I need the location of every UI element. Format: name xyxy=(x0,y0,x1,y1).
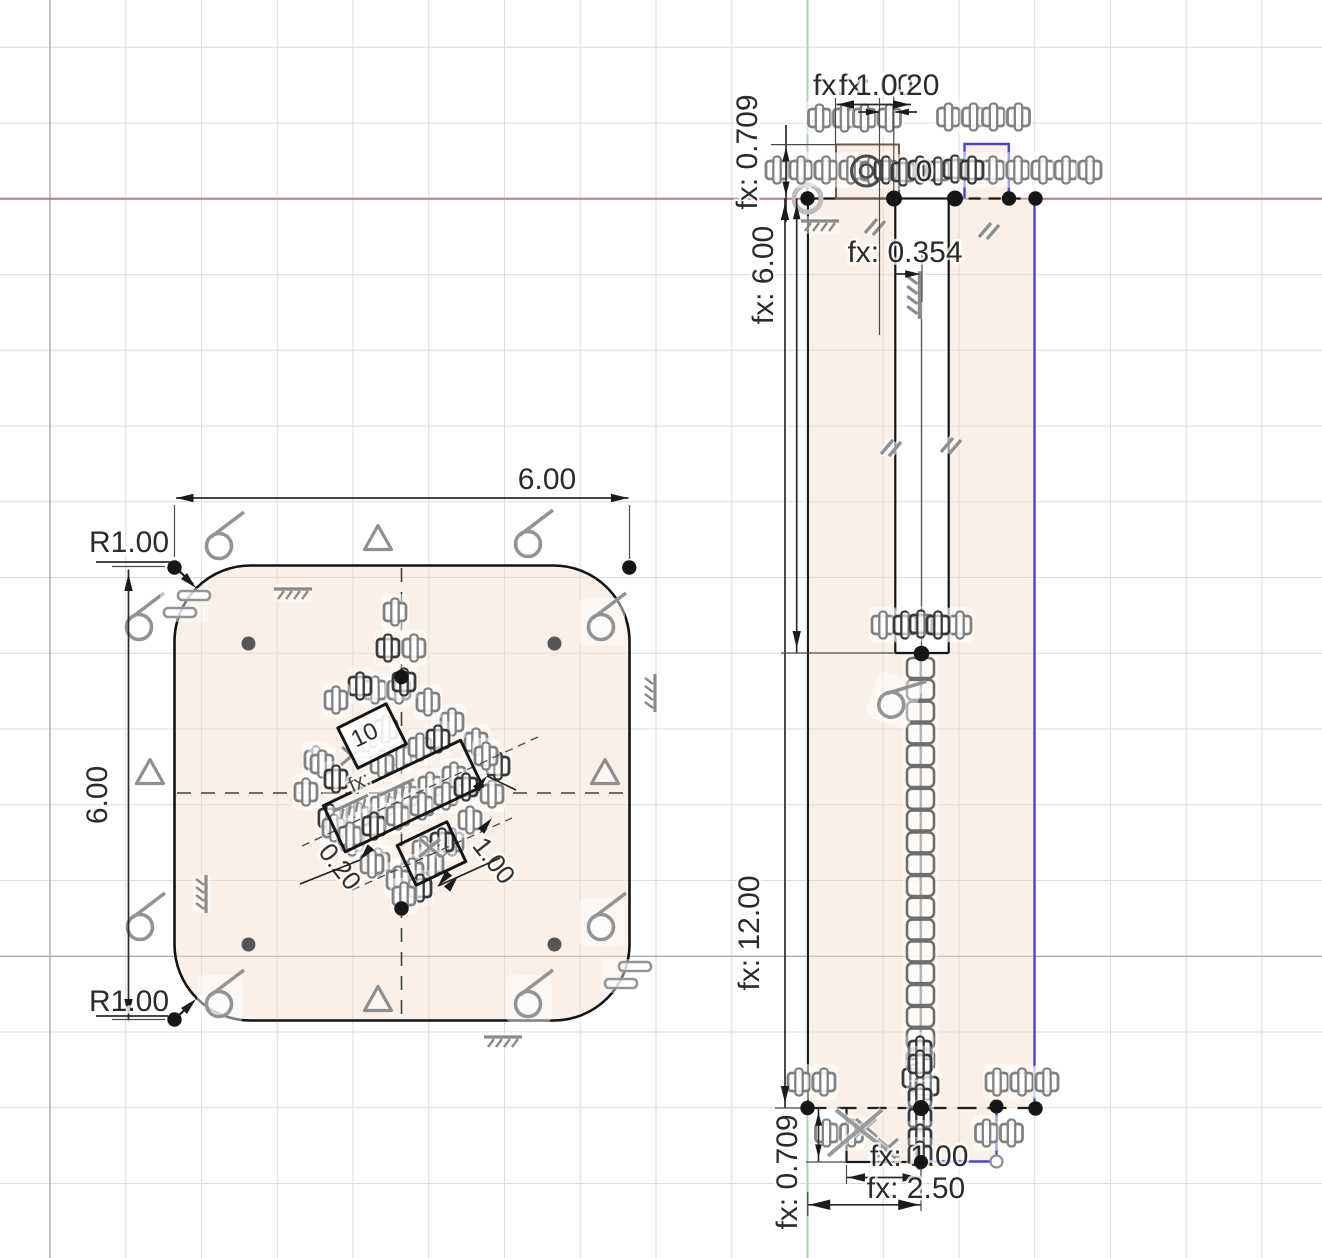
svg-text:0: 0 xyxy=(916,155,933,188)
svg-text:6.00: 6.00 xyxy=(518,463,576,496)
svg-text:fx: 2.50: fx: 2.50 xyxy=(867,1172,965,1205)
svg-text:fx: 0.354: fx: 0.354 xyxy=(847,236,962,269)
svg-text:0.20: 0.20 xyxy=(881,69,939,102)
svg-text:fx: 12.00: fx: 12.00 xyxy=(733,875,766,990)
svg-text:6.00: 6.00 xyxy=(81,766,114,824)
svg-text:fx: 0.709: fx: 0.709 xyxy=(771,1114,804,1229)
svg-text:R1.00: R1.00 xyxy=(89,526,169,559)
svg-text:fx: 6.00: fx: 6.00 xyxy=(747,226,780,324)
svg-text:R1.00: R1.00 xyxy=(89,985,169,1018)
svg-text:fx: 0.709: fx: 0.709 xyxy=(731,94,764,209)
